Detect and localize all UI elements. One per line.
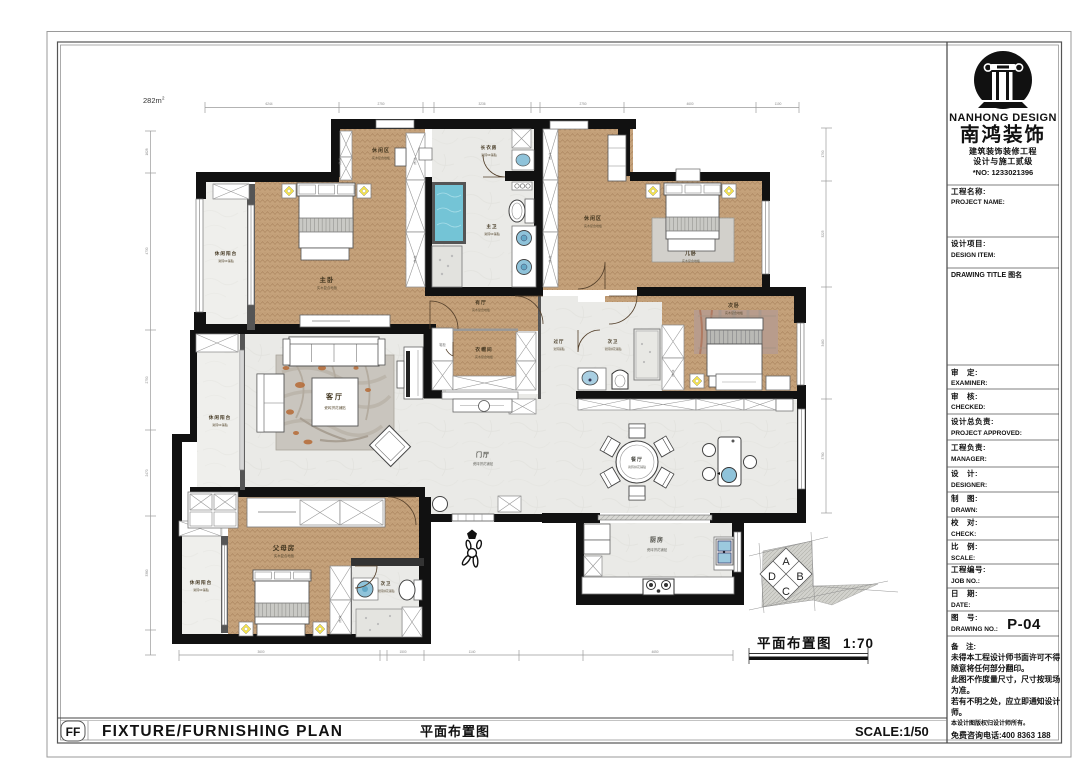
svg-text:NANHONG DESIGN: NANHONG DESIGN <box>949 112 1057 124</box>
svg-text:休闲阳台: 休闲阳台 <box>214 250 237 257</box>
svg-text:P-04: P-04 <box>1007 616 1041 633</box>
svg-text:DESIGNER:: DESIGNER: <box>951 482 987 489</box>
svg-text:此图不作度量尺寸，尺寸按现场: 此图不作度量尺寸，尺寸按现场 <box>951 674 1060 684</box>
svg-text:长衣房: 长衣房 <box>481 144 498 151</box>
svg-text:次卧: 次卧 <box>728 302 740 309</box>
svg-text:未得本工程设计师书面许可不得: 未得本工程设计师书面许可不得 <box>950 652 1060 662</box>
svg-text:SCALE:: SCALE: <box>951 555 975 562</box>
svg-text:实木复合地板: 实木复合地板 <box>725 310 743 315</box>
svg-text:柜: 柜 <box>671 372 674 377</box>
svg-text:PROJECT APPROVED:: PROJECT APPROVED: <box>951 430 1022 437</box>
svg-text:*NO: 1233021396: *NO: 1233021396 <box>973 168 1033 177</box>
svg-text:随意将任何部分翻印。: 随意将任何部分翻印。 <box>951 663 1029 673</box>
svg-text:休闲阳台: 休闲阳台 <box>189 579 212 586</box>
svg-text:柜: 柜 <box>413 258 416 263</box>
svg-text:免费咨询电话:400 8363 188: 免费咨询电话:400 8363 188 <box>951 730 1051 740</box>
svg-text:柜: 柜 <box>548 258 551 263</box>
svg-text:JOB NO.:: JOB NO.: <box>951 578 980 585</box>
svg-text:师。: 师。 <box>951 707 967 717</box>
svg-text:1500: 1500 <box>399 650 406 654</box>
svg-text:休闲阳台: 休闲阳台 <box>208 414 231 421</box>
svg-text:日 期:: 日 期: <box>951 588 978 598</box>
svg-text:实木复合地板: 实木复合地板 <box>475 354 493 359</box>
svg-text:休闲区: 休闲区 <box>371 147 390 154</box>
svg-text:实木复合地板: 实木复合地板 <box>584 223 602 228</box>
svg-text:282m: 282m <box>143 96 162 105</box>
svg-text:设计与施工贰级: 设计与施工贰级 <box>973 156 1033 166</box>
svg-text:备 注:: 备 注: <box>950 641 976 651</box>
svg-text:柜: 柜 <box>338 618 341 623</box>
svg-text:6244: 6244 <box>265 102 272 106</box>
svg-text:FIXTURE/FURNISHING PLAN: FIXTURE/FURNISHING PLAN <box>102 723 343 740</box>
svg-text:瓷砖拼花铺贴: 瓷砖拼花铺贴 <box>473 461 494 466</box>
svg-text:DESIGN ITEM:: DESIGN ITEM: <box>951 252 995 259</box>
svg-text:设计总负责:: 设计总负责: <box>951 416 994 426</box>
svg-text:瓷砖拼花铺贴: 瓷砖拼花铺贴 <box>605 347 622 351</box>
svg-text:EXAMINER:: EXAMINER: <box>951 380 987 387</box>
svg-text:平面布置图: 平面布置图 <box>757 635 832 651</box>
svg-text:1100: 1100 <box>775 102 782 106</box>
svg-text:为准。: 为准。 <box>951 685 974 695</box>
svg-text:次卫: 次卫 <box>381 580 392 587</box>
svg-text:DRAWING TITLE 图名: DRAWING TITLE 图名 <box>951 270 1022 279</box>
svg-text:主卫: 主卫 <box>486 223 497 230</box>
svg-text:工程名称:: 工程名称: <box>951 186 986 196</box>
svg-text:2470: 2470 <box>145 469 149 476</box>
svg-text:FF: FF <box>66 725 81 739</box>
svg-text:1140: 1140 <box>469 650 476 654</box>
svg-text:CHECK:: CHECK: <box>951 531 976 538</box>
svg-text:瓷砖6F铺贴: 瓷砖6F铺贴 <box>481 152 497 157</box>
svg-text:工程编号:: 工程编号: <box>951 564 986 574</box>
svg-text:父母房: 父母房 <box>272 543 296 552</box>
svg-text:3236: 3236 <box>478 102 485 106</box>
svg-text:柜: 柜 <box>548 155 551 160</box>
svg-text:实木复合地板: 实木复合地板 <box>682 258 700 263</box>
svg-text:DRAWN:: DRAWN: <box>951 507 978 514</box>
svg-text:瓷砖6F铺贴: 瓷砖6F铺贴 <box>193 587 209 592</box>
svg-text:制 图:: 制 图: <box>951 493 978 503</box>
svg-text:实木复合地板: 实木复合地板 <box>317 285 338 290</box>
svg-text:工程负责:: 工程负责: <box>951 442 986 452</box>
svg-text:实木复合地板: 实木复合地板 <box>472 307 490 312</box>
svg-text:儿卧: 儿卧 <box>684 250 697 257</box>
svg-text:3225: 3225 <box>821 230 825 237</box>
svg-text:3380: 3380 <box>145 569 149 576</box>
svg-text:主卧: 主卧 <box>320 275 335 284</box>
svg-text:厨房: 厨房 <box>650 536 664 544</box>
svg-text:有厅: 有厅 <box>475 299 487 306</box>
svg-text:门厅: 门厅 <box>476 451 490 459</box>
svg-text:瓷砖6F铺贴: 瓷砖6F铺贴 <box>218 258 234 263</box>
svg-text:B: B <box>796 571 803 583</box>
svg-text:比 例:: 比 例: <box>951 541 978 551</box>
svg-text:图 号:: 图 号: <box>951 613 978 622</box>
svg-text:瓷砖拼花铺贴: 瓷砖拼花铺贴 <box>324 405 346 410</box>
svg-text:柜: 柜 <box>413 160 416 165</box>
svg-text:客厅: 客厅 <box>325 392 344 401</box>
svg-text:4600: 4600 <box>686 102 693 106</box>
svg-text:2750: 2750 <box>579 102 586 106</box>
svg-text:3600: 3600 <box>257 650 264 654</box>
svg-text:衣帽间: 衣帽间 <box>475 346 492 353</box>
svg-text:瓷砖拼花铺贴: 瓷砖拼花铺贴 <box>647 547 668 552</box>
svg-text:建筑装饰装修工程: 建筑装饰装修工程 <box>968 146 1037 156</box>
svg-text:瓷砖拼花铺贴: 瓷砖拼花铺贴 <box>378 589 395 593</box>
svg-text:2750: 2750 <box>145 376 149 383</box>
svg-text:实木复合地板: 实木复合地板 <box>372 155 390 160</box>
svg-text:DRAWING NO.:: DRAWING NO.: <box>951 626 998 633</box>
svg-text:柜: 柜 <box>338 160 341 165</box>
svg-text:3460: 3460 <box>821 339 825 346</box>
svg-text:3780: 3780 <box>821 452 825 459</box>
svg-text:南鸿装饰: 南鸿装饰 <box>960 123 1046 146</box>
svg-text:D: D <box>768 571 776 583</box>
svg-text:餐厅: 餐厅 <box>630 456 643 463</box>
svg-text:1628: 1628 <box>145 148 149 155</box>
svg-text:审 定:: 审 定: <box>951 367 978 377</box>
svg-text:1790: 1790 <box>821 150 825 157</box>
svg-text:设计项目:: 设计项目: <box>951 238 986 248</box>
svg-text:次卫: 次卫 <box>608 338 619 345</box>
svg-text:瓷砖6F铺贴: 瓷砖6F铺贴 <box>484 231 500 236</box>
svg-text:A: A <box>782 556 790 568</box>
svg-text:校 对:: 校 对: <box>951 517 978 527</box>
svg-text:鞋柜: 鞋柜 <box>439 342 446 347</box>
svg-text:设 计:: 设 计: <box>951 468 978 478</box>
svg-text:1:70: 1:70 <box>843 636 874 651</box>
svg-text:本设计图版权归设计师所有。: 本设计图版权归设计师所有。 <box>951 719 1029 727</box>
svg-text:平面布置图: 平面布置图 <box>420 724 490 739</box>
svg-text:DATE:: DATE: <box>951 602 970 609</box>
svg-text:若有不明之处，应立即通知设计: 若有不明之处，应立即通知设计 <box>950 696 1060 706</box>
svg-text:C: C <box>782 586 790 598</box>
svg-text:2750: 2750 <box>377 102 384 106</box>
svg-text:休闲区: 休闲区 <box>583 215 602 222</box>
svg-text:PROJECT NAME:: PROJECT NAME: <box>951 199 1005 206</box>
svg-text:瓷砖铺贴: 瓷砖铺贴 <box>553 347 564 351</box>
svg-text:4730: 4730 <box>145 247 149 254</box>
svg-text:瓷砖拼花铺贴: 瓷砖拼花铺贴 <box>628 464 646 469</box>
svg-text:MANAGER:: MANAGER: <box>951 456 987 463</box>
svg-text:4650: 4650 <box>651 650 658 654</box>
svg-text:实木复合地板: 实木复合地板 <box>274 553 295 558</box>
svg-text:过厅: 过厅 <box>554 338 565 345</box>
svg-text:审 核:: 审 核: <box>951 391 978 401</box>
svg-text:SCALE:1/50: SCALE:1/50 <box>855 724 929 739</box>
svg-text:CHECKED:: CHECKED: <box>951 404 985 411</box>
svg-text:瓷砖6F铺贴: 瓷砖6F铺贴 <box>212 422 228 427</box>
